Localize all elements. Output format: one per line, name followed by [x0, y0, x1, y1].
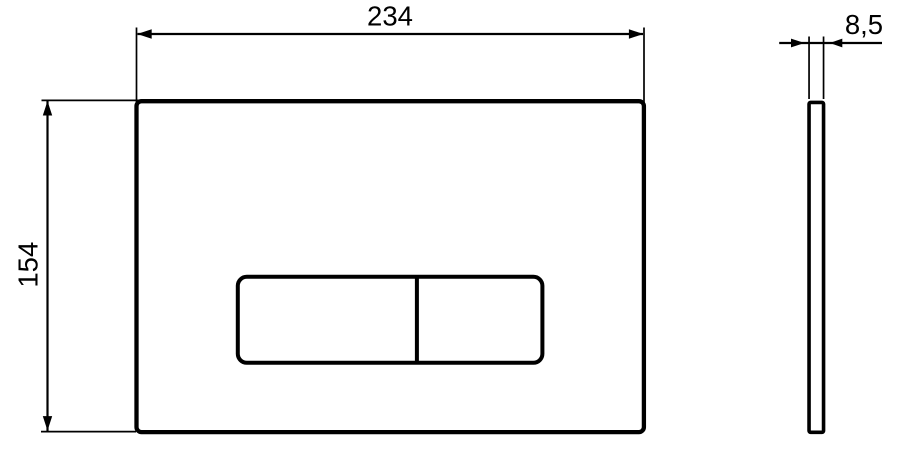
svg-text:234: 234 — [367, 1, 413, 32]
svg-text:154: 154 — [12, 242, 43, 288]
svg-text:8,5: 8,5 — [845, 9, 883, 40]
